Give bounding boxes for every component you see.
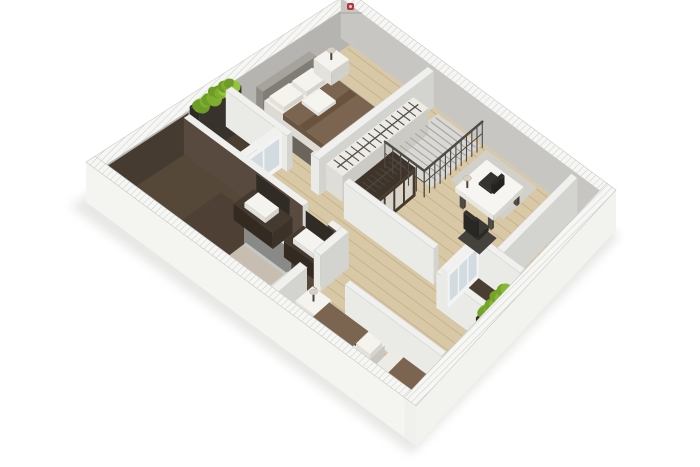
- floor-plan-3d-render: [0, 0, 700, 467]
- watermark-logo: [335, 3, 365, 14]
- floor-plan-page: [0, 0, 700, 467]
- logo-mark-icon: [347, 3, 354, 10]
- logo-text-bar: [338, 12, 362, 14]
